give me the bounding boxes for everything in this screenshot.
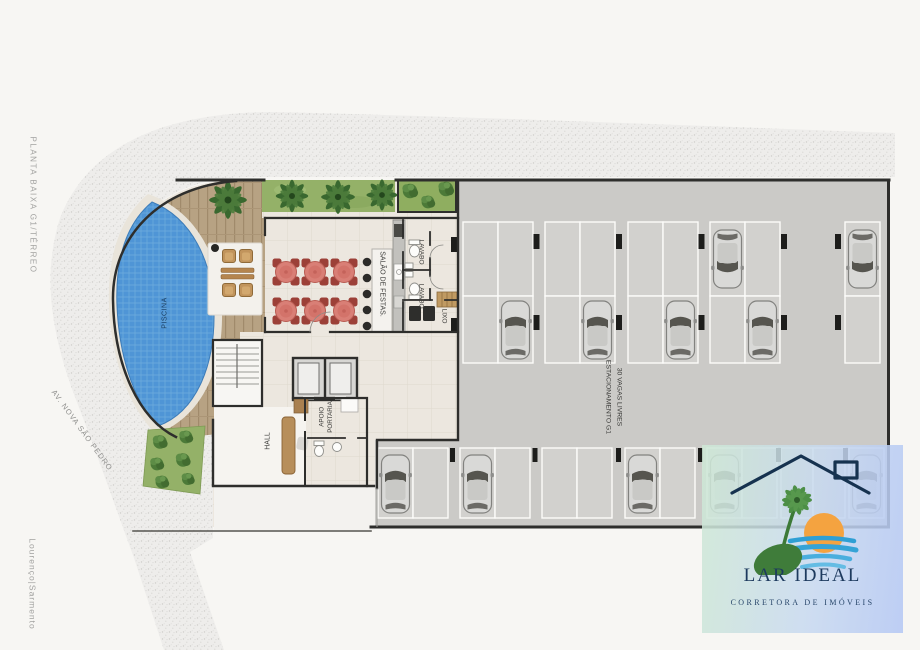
lavabo1-label: LAVABO [416, 239, 425, 264]
lawn-strip [262, 179, 398, 214]
parking-label-line1: ESTACIONAMENTO G1 [603, 360, 612, 434]
concierge-label: APOIO PORTARIA [319, 401, 336, 433]
stairs [213, 340, 262, 406]
company-name: LAR IDEAL [702, 565, 903, 587]
lavabo2-label: LAVABO [416, 283, 425, 308]
trash-label: LIXO [439, 309, 448, 324]
pool-label: PISCINA [160, 297, 169, 329]
logo-palm-icon [749, 485, 812, 575]
planter-bed [398, 180, 456, 212]
company-tagline: CORRETORA DE IMÓVEIS [702, 598, 903, 607]
plan-title: PLANTA BAIXA G1/TÉRREO [27, 137, 38, 274]
concierge-label-line1: APOIO [319, 407, 326, 427]
parking-label-line2: 30 VAGAS LIVRES [614, 368, 623, 426]
realtor-logo: LAR IDEAL CORRETORA DE IMÓVEIS [702, 445, 903, 633]
architect-credit: Lourenço|Sarmento [26, 538, 37, 630]
logo-house-icon [732, 456, 869, 493]
hall-label: HALL [263, 432, 272, 450]
concierge-label-line2: PORTARIA [327, 401, 334, 433]
realtor-logo-graphic [702, 445, 903, 575]
floor-plan-page: { "annotations": { "plan_title": "PLANTA… [0, 0, 920, 650]
elevators [293, 358, 357, 400]
party-room-label: SALÃO DE FESTAS. [377, 251, 386, 317]
